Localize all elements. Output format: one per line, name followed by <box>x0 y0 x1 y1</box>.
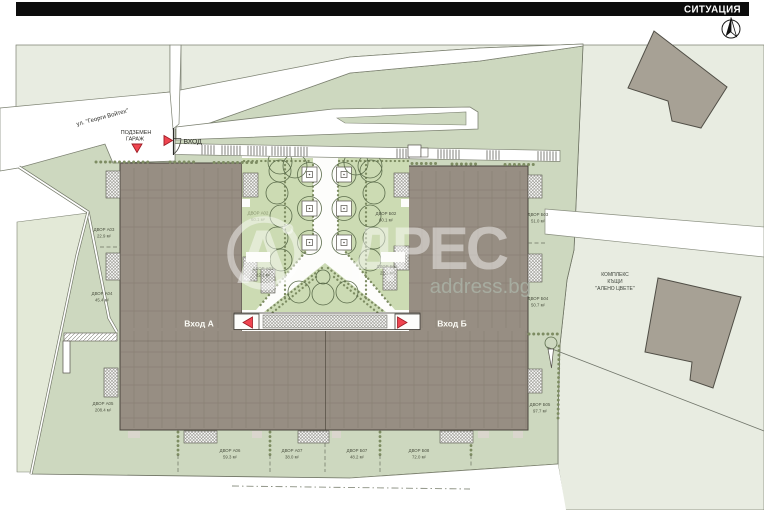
svg-text:45.4 м²: 45.4 м² <box>95 298 110 303</box>
svg-text:72.0 м²: 72.0 м² <box>412 455 427 460</box>
svg-text:ГАРАЖ: ГАРАЖ <box>126 137 144 143</box>
svg-text:ПОДЗЕМЕН: ПОДЗЕМЕН <box>121 130 152 136</box>
svg-text:"АЛЕНО ЦВЕТЕ": "АЛЕНО ЦВЕТЕ" <box>595 286 634 292</box>
svg-text:ДВОР Б03: ДВОР Б03 <box>528 212 549 217</box>
svg-text:48.2 м²: 48.2 м² <box>350 455 365 460</box>
svg-text:ВХОД: ВХОД <box>184 139 203 146</box>
svg-text:ДВОР Б08: ДВОР Б08 <box>409 448 430 453</box>
svg-text:ДВОР А03: ДВОР А03 <box>94 227 115 232</box>
svg-text:КЪЩИ: КЪЩИ <box>607 279 623 285</box>
svg-text:ДВОР А04: ДВОР А04 <box>92 291 113 296</box>
svg-text:51.0 м²: 51.0 м² <box>531 219 546 224</box>
svg-text:50.7 м²: 50.7 м² <box>531 303 546 308</box>
svg-text:СИТУАЦИЯ: СИТУАЦИЯ <box>684 5 741 16</box>
svg-text:22.9 м²: 22.9 м² <box>97 234 112 239</box>
svg-text:ДВОР А07: ДВОР А07 <box>282 448 303 453</box>
svg-text:address.bg: address.bg <box>430 275 531 298</box>
svg-text:97.7 м²: 97.7 м² <box>533 409 548 414</box>
svg-text:КОМПЛЕКС: КОМПЛЕКС <box>601 272 629 278</box>
svg-text:59.3 м²: 59.3 м² <box>223 455 238 460</box>
svg-text:ДРЕС: ДРЕС <box>352 215 508 282</box>
svg-text:208.4 м²: 208.4 м² <box>95 408 112 413</box>
svg-text:Вход Б: Вход Б <box>437 319 467 329</box>
svg-text:38.0 м²: 38.0 м² <box>285 455 300 460</box>
svg-text:ДВОР Б05: ДВОР Б05 <box>530 402 551 407</box>
svg-text:ДВОР А06: ДВОР А06 <box>220 448 241 453</box>
svg-text:ДВОР Б07: ДВОР Б07 <box>347 448 368 453</box>
svg-text:Вход А: Вход А <box>184 319 214 329</box>
svg-text:ДВОР А05: ДВОР А05 <box>93 401 114 406</box>
